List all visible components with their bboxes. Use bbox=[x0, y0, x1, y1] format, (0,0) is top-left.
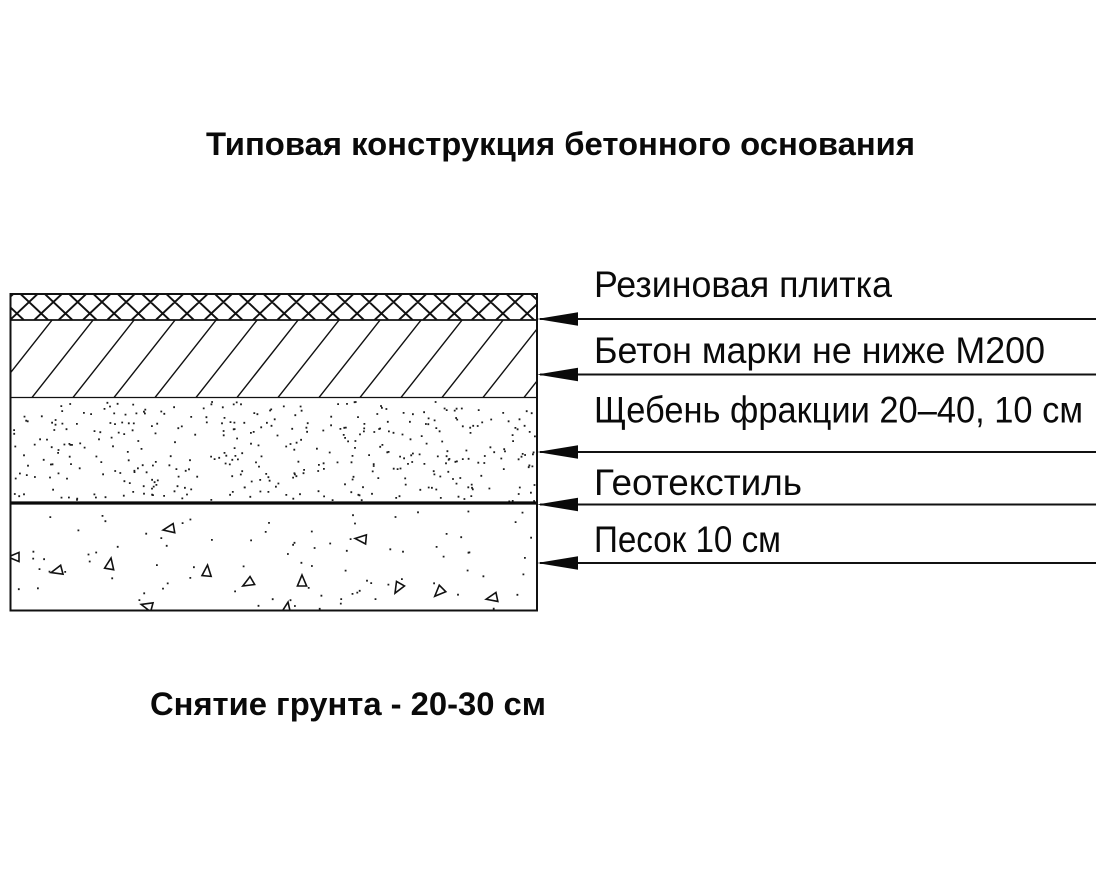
svg-text:Песок 10 см: Песок 10 см bbox=[594, 519, 781, 560]
svg-text:Снятие грунта - 20-30 см: Снятие грунта - 20-30 см bbox=[150, 686, 546, 722]
svg-text:Резиновая плитка: Резиновая плитка bbox=[594, 264, 892, 305]
svg-text:Бетон марки не ниже М200: Бетон марки не ниже М200 bbox=[594, 330, 1045, 371]
svg-text:Геотекстиль: Геотекстиль bbox=[594, 462, 802, 503]
svg-text:Щебень фракции 20–40, 10 см: Щебень фракции 20–40, 10 см bbox=[594, 390, 1083, 431]
svg-text:Типовая конструкция бетонного: Типовая конструкция бетонного основания bbox=[206, 126, 915, 162]
